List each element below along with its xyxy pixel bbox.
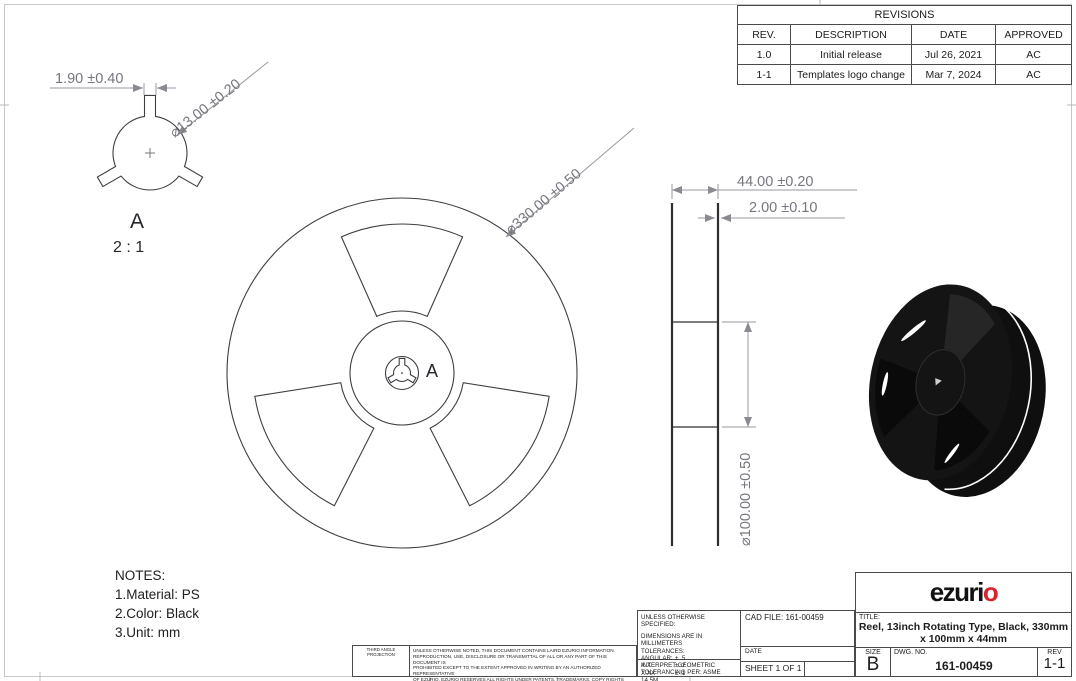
note-item: 1.Material: PS [115,585,200,604]
revision-row-date: Mar 7, 2024 [912,65,996,84]
revision-row-approved: AC [996,45,1071,65]
front-window-bottom-right [430,383,549,506]
drawing-title-line1: Reel, 13inch Rotating Type, Black, 330mm [856,622,1071,634]
front-window-top [341,224,462,316]
dim-hub-dia: ⌀100.00 ±0.50 [738,453,754,546]
drawing-sheet: 1.90 ±0.40 ⌀13.00 ±0.20 A 2 : 1 ⌀330.00 … [0,0,1076,681]
logo-text-red: o [983,577,997,607]
revision-row-description: Templates logo change [791,65,912,84]
size-value: B [856,656,890,674]
notes-title: NOTES: [115,566,200,585]
front-window-bottom-left [255,383,374,506]
iso-view-drawing [850,271,1066,510]
dim-tab-width: 1.90 ±0.40 [55,71,123,87]
revision-row-rev: 1-1 [738,65,791,84]
note-item: 3.Unit: mm [115,623,200,642]
third-angle-projection-label: THIRD ANGLE PROJECTION [353,646,409,657]
cad-file-cell: CAD FILE: 161-00459 [741,611,854,647]
projection-legal-strip: THIRD ANGLE PROJECTION UNLESS OTHERWISE … [352,645,637,677]
notes-block: NOTES: 1.Material: PS 2.Color: Black 3.U… [115,566,200,642]
front-view-drawing [227,198,577,548]
spec-line: TOLERANCES: [641,648,737,655]
dwg-no-label: DWG. NO. [894,649,927,656]
spec-block: UNLESS OTHERWISE SPECIFIED: DIMENSIONS A… [637,610,855,677]
revisions-header-rev: REV. [738,25,791,45]
revision-row-date: Jul 26, 2021 [912,45,996,65]
size-cell: SIZE B [856,648,891,677]
title-label: TITLE: [859,614,880,621]
revisions-header-approved: APPROVED [996,25,1071,45]
side-dimension-lines [672,184,857,427]
side-view-drawing [672,203,718,546]
spec-line: UNLESS OTHERWISE SPECIFIED: [641,614,737,629]
detail-view-label: A [130,210,144,234]
sheet-cell-divider [804,662,805,676]
detail-view-a-drawing [97,95,202,190]
revision-row-description: Initial release [791,45,912,65]
detail-view-scale: 2 : 1 [113,239,144,257]
title-block: ezurio TITLE: Reel, 13inch Rotating Type… [855,572,1072,677]
interpret-cell: INTERPRET GEOMETRIC TOLERANCING PER: ASM… [638,660,741,676]
revision-row-approved: AC [996,65,1071,84]
legal-text: UNLESS OTHERWISE NOTED, THIS DOCUMENT CO… [410,646,636,676]
rev-value: 1-1 [1038,656,1071,672]
dim-flange-thickness: 2.00 ±0.10 [749,200,817,216]
ezurio-logo: ezurio [856,573,1071,613]
third-angle-projection-cell: THIRD ANGLE PROJECTION [353,646,410,676]
detail-callout-label: A [426,361,438,382]
revision-row-rev: 1.0 [738,45,791,65]
revisions-table: REVISIONS REV. DESCRIPTION DATE APPROVED… [737,5,1072,85]
dwg-no-value: 161-00459 [891,659,1037,673]
spec-line: DIMENSIONS ARE IN MILLIMETERS [641,633,737,648]
note-item: 2.Color: Black [115,604,200,623]
rev-cell: REV 1-1 [1038,648,1071,677]
detail-hole-outline [97,95,202,190]
dim-reel-width: 44.00 ±0.20 [737,174,814,190]
tolerance-spec-cell: UNLESS OTHERWISE SPECIFIED: DIMENSIONS A… [638,611,741,660]
drawing-title-line2: x 100mm x 44mm [856,634,1071,646]
sheet-cell: SHEET 1 OF 1 [741,662,854,676]
dwg-no-cell: DWG. NO. 161-00459 [891,648,1038,677]
revisions-header-date: DATE [912,25,996,45]
logo-text-black: ezuri [930,577,983,607]
revisions-title: REVISIONS [738,6,1071,25]
front-center-hole [388,358,416,382]
title-cell: TITLE: Reel, 13inch Rotating Type, Black… [856,613,1071,648]
date-cell: DATE [741,647,854,662]
revisions-header-description: DESCRIPTION [791,25,912,45]
